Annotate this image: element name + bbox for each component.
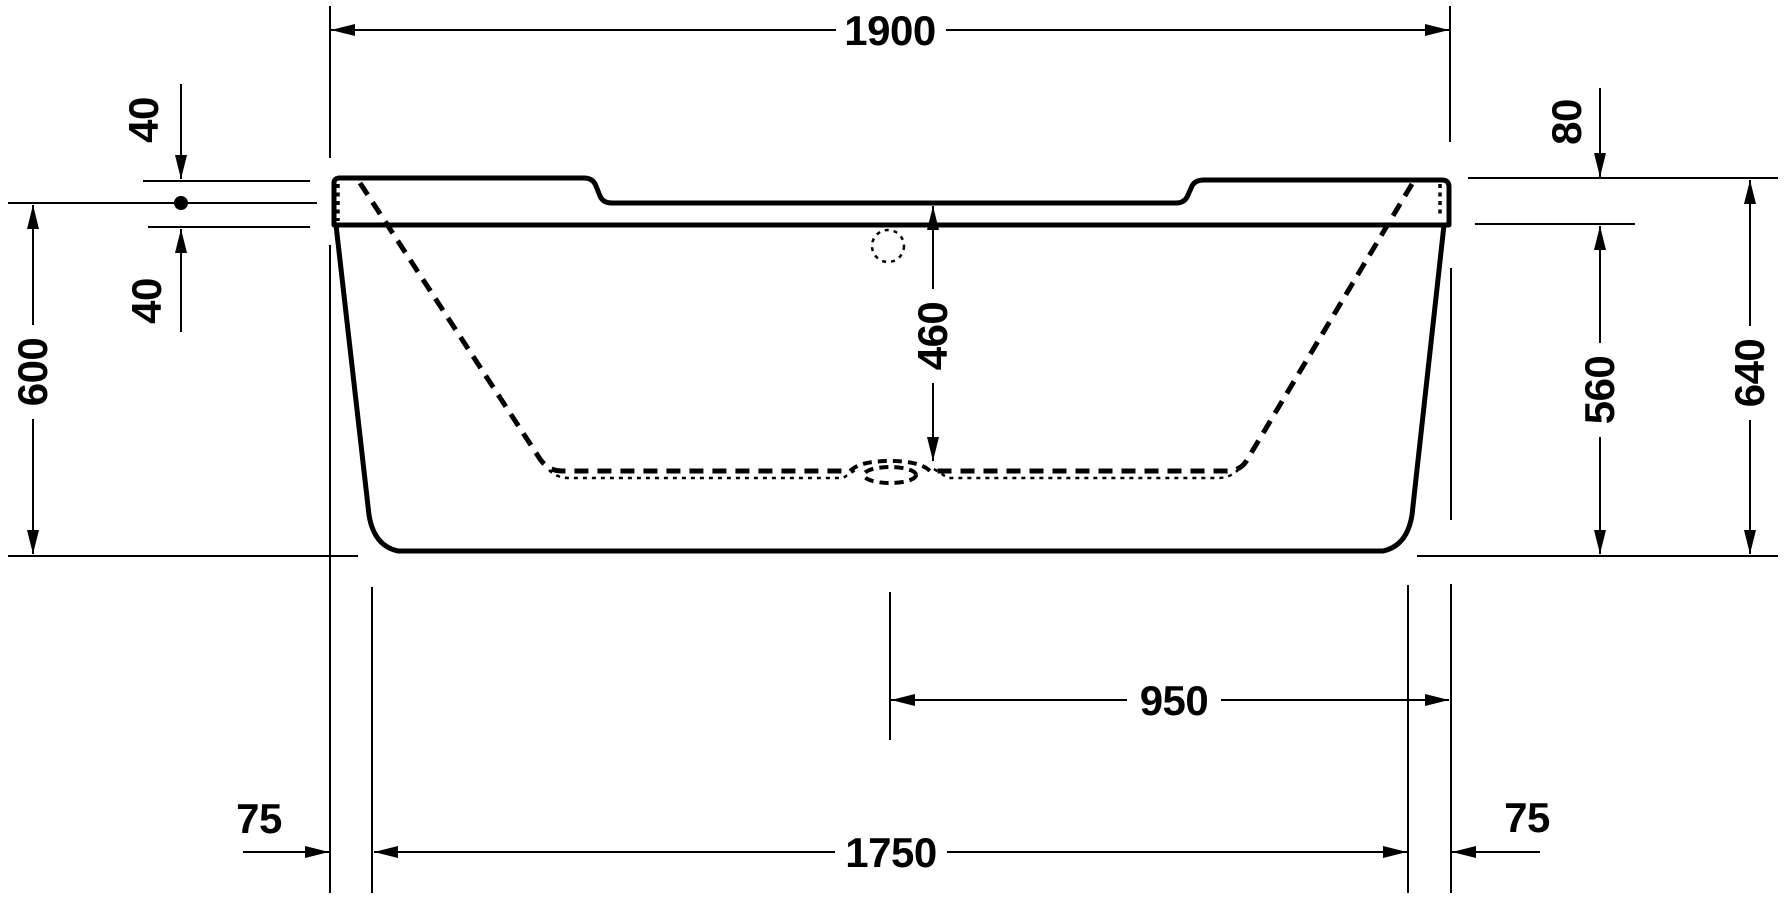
dimension-base-inset-left: 75 [236, 795, 329, 858]
dimension-rim-offset-upper: 40 [120, 84, 187, 179]
extension-lines [8, 6, 1778, 893]
dimension-drain-to-right-edge: 950 [891, 677, 1449, 724]
dim-label-base-inset-left: 75 [236, 795, 282, 842]
dimension-rim-offset-lower: 40 [123, 229, 187, 332]
dimension-overall-height: 640 [1726, 180, 1773, 554]
technical-drawing-page: 1900 40 40 600 460 [0, 0, 1784, 897]
dimension-base-inset-right: 75 [1452, 794, 1550, 858]
dimension-interior-depth: 460 [909, 206, 956, 461]
dim-label-overall-length: 1900 [844, 7, 935, 54]
arrowhead-right [305, 846, 329, 858]
arrowhead-up [1744, 180, 1756, 204]
dim-label-drain-to-right-edge: 950 [1140, 677, 1209, 724]
tub-outline [334, 178, 1449, 551]
tub-apron [336, 225, 1444, 551]
arrowhead-up [27, 205, 39, 229]
dim-label-overall-height: 640 [1726, 339, 1773, 408]
arrowhead-down [1744, 530, 1756, 554]
dim-label-rim-offset-upper: 40 [120, 97, 167, 143]
bathtub-elevation-drawing: 1900 40 40 600 460 [0, 0, 1784, 897]
dim-label-interior-depth: 460 [909, 302, 956, 371]
drain-outlet-icon [864, 467, 916, 483]
dim-label-rim-offset-lower: 40 [123, 278, 170, 324]
arrowhead-right [1425, 24, 1449, 36]
arrowhead-down [27, 530, 39, 554]
datum-point [174, 196, 188, 210]
arrowhead-left [331, 24, 355, 36]
dimension-rim-band-height: 80 [1543, 88, 1606, 177]
arrowhead-left [1452, 846, 1476, 858]
dimension-base-length: 1750 [374, 829, 1407, 876]
arrowhead-right [1383, 846, 1407, 858]
dimension-skirt-height: 560 [1576, 226, 1623, 554]
dim-label-skirt-height: 560 [1576, 356, 1623, 425]
arrowhead-up [1594, 226, 1606, 250]
tub-interior-hidden-lines [360, 183, 1412, 483]
arrowhead-right [1425, 694, 1449, 706]
dim-label-height-datum-to-floor: 600 [9, 338, 56, 407]
arrowhead-down [927, 437, 939, 461]
arrowhead-up [175, 229, 187, 253]
drain-recess-bump [850, 461, 930, 471]
tub-rim-band [334, 178, 1449, 225]
arrowhead-down [1594, 530, 1606, 554]
dim-label-base-inset-right: 75 [1504, 794, 1550, 841]
dim-label-base-length: 1750 [845, 829, 936, 876]
dimension-overall-length: 1900 [331, 7, 1449, 54]
dimension-height-datum-to-floor: 600 [9, 205, 56, 554]
overflow-hole-icon [872, 230, 904, 262]
arrowhead-left [891, 694, 915, 706]
arrowhead-left [374, 846, 398, 858]
arrowhead-down [1594, 153, 1606, 177]
dim-label-rim-band-height: 80 [1543, 99, 1590, 145]
arrowhead-down [175, 155, 187, 179]
